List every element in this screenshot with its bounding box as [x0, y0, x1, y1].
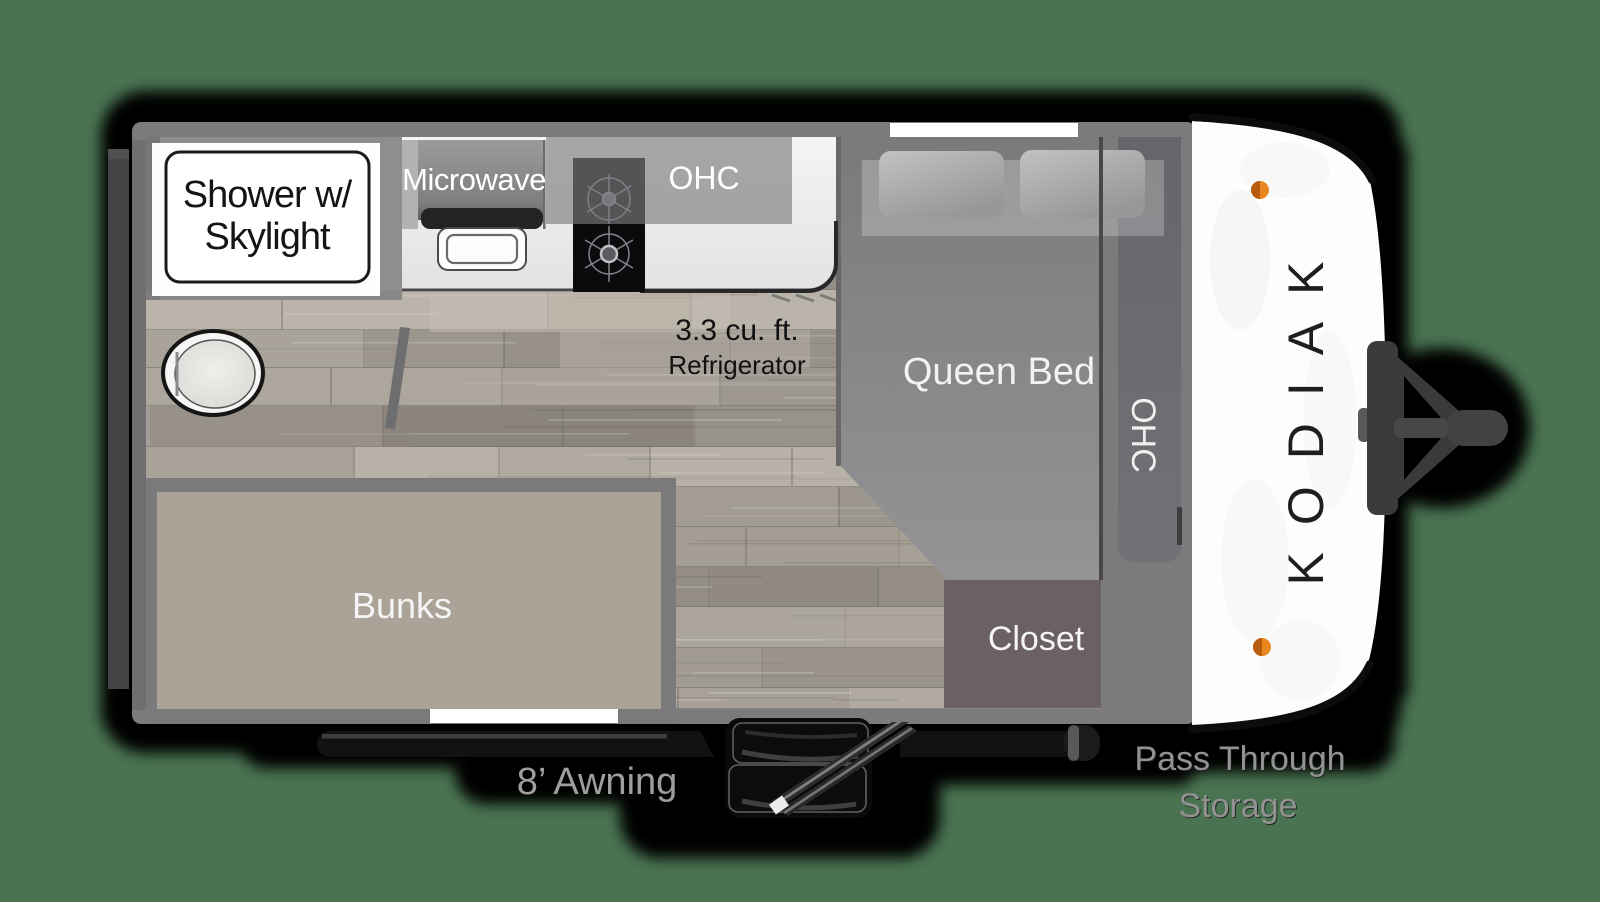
svg-text:3.3 cu. ft.: 3.3 cu. ft.	[675, 314, 798, 347]
svg-text:OHC: OHC	[668, 160, 739, 196]
svg-text:Storage: Storage	[1178, 787, 1297, 825]
svg-text:Skylight: Skylight	[204, 216, 330, 258]
svg-text:Microwave: Microwave	[402, 162, 546, 197]
svg-text:Bunks: Bunks	[352, 585, 452, 626]
svg-text:KODIAK: KODIAK	[1278, 235, 1334, 586]
svg-text:Refrigerator: Refrigerator	[668, 350, 806, 380]
svg-text:8’ Awning: 8’ Awning	[517, 761, 678, 803]
svg-text:Shower w/: Shower w/	[183, 174, 353, 216]
svg-text:Queen Bed: Queen Bed	[903, 351, 1095, 393]
svg-text:Pass Through: Pass Through	[1134, 740, 1345, 778]
svg-text:OHC: OHC	[1124, 397, 1162, 473]
svg-text:Closet: Closet	[988, 620, 1085, 658]
